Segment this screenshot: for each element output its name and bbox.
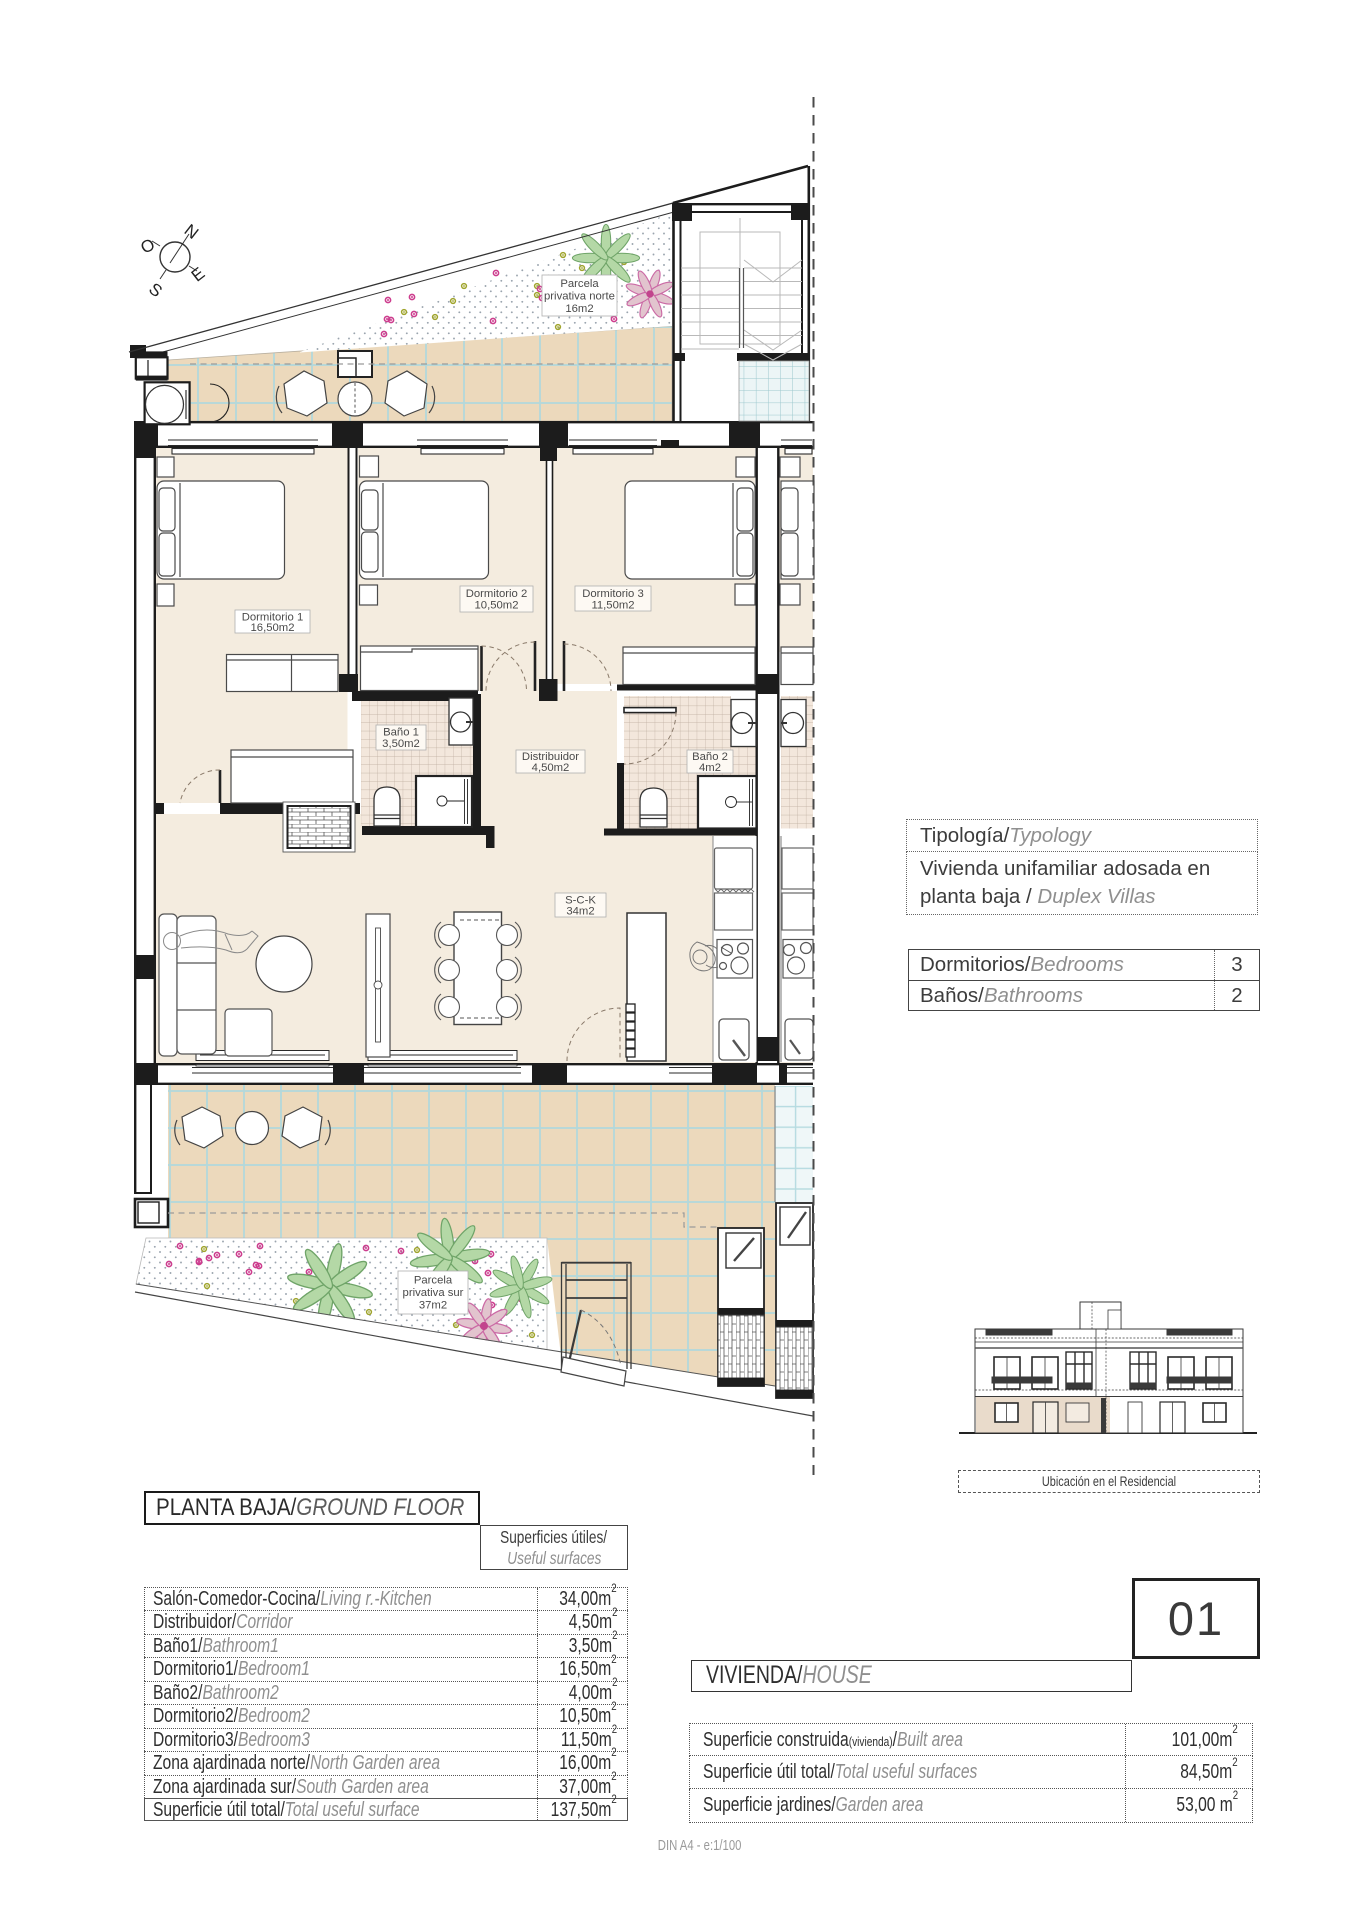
svg-text:16,50m2: 16,50m2 xyxy=(251,622,295,634)
svg-text:34m2: 34m2 xyxy=(566,906,594,918)
svg-text:N: N xyxy=(181,220,202,243)
svg-text:privativa norte: privativa norte xyxy=(544,291,615,303)
svg-text:O: O xyxy=(137,235,158,258)
svg-text:S: S xyxy=(145,279,166,301)
svg-text:4m2: 4m2 xyxy=(699,762,721,774)
svg-text:3,50m2: 3,50m2 xyxy=(382,738,420,750)
svg-text:11,50m2: 11,50m2 xyxy=(591,600,634,612)
svg-text:37m2: 37m2 xyxy=(419,1300,447,1312)
svg-text:Parcela: Parcela xyxy=(414,1275,453,1287)
svg-text:Baño 1: Baño 1 xyxy=(383,727,419,739)
svg-text:Dormitorio 2: Dormitorio 2 xyxy=(466,588,528,600)
svg-text:Parcela: Parcela xyxy=(560,278,599,290)
svg-text:privativa sur: privativa sur xyxy=(403,1287,464,1299)
svg-text:4,50m2: 4,50m2 xyxy=(532,762,570,774)
svg-text:10,50m2: 10,50m2 xyxy=(475,600,519,612)
svg-text:16m2: 16m2 xyxy=(565,303,593,315)
svg-text:Dormitorio 3: Dormitorio 3 xyxy=(582,588,644,600)
